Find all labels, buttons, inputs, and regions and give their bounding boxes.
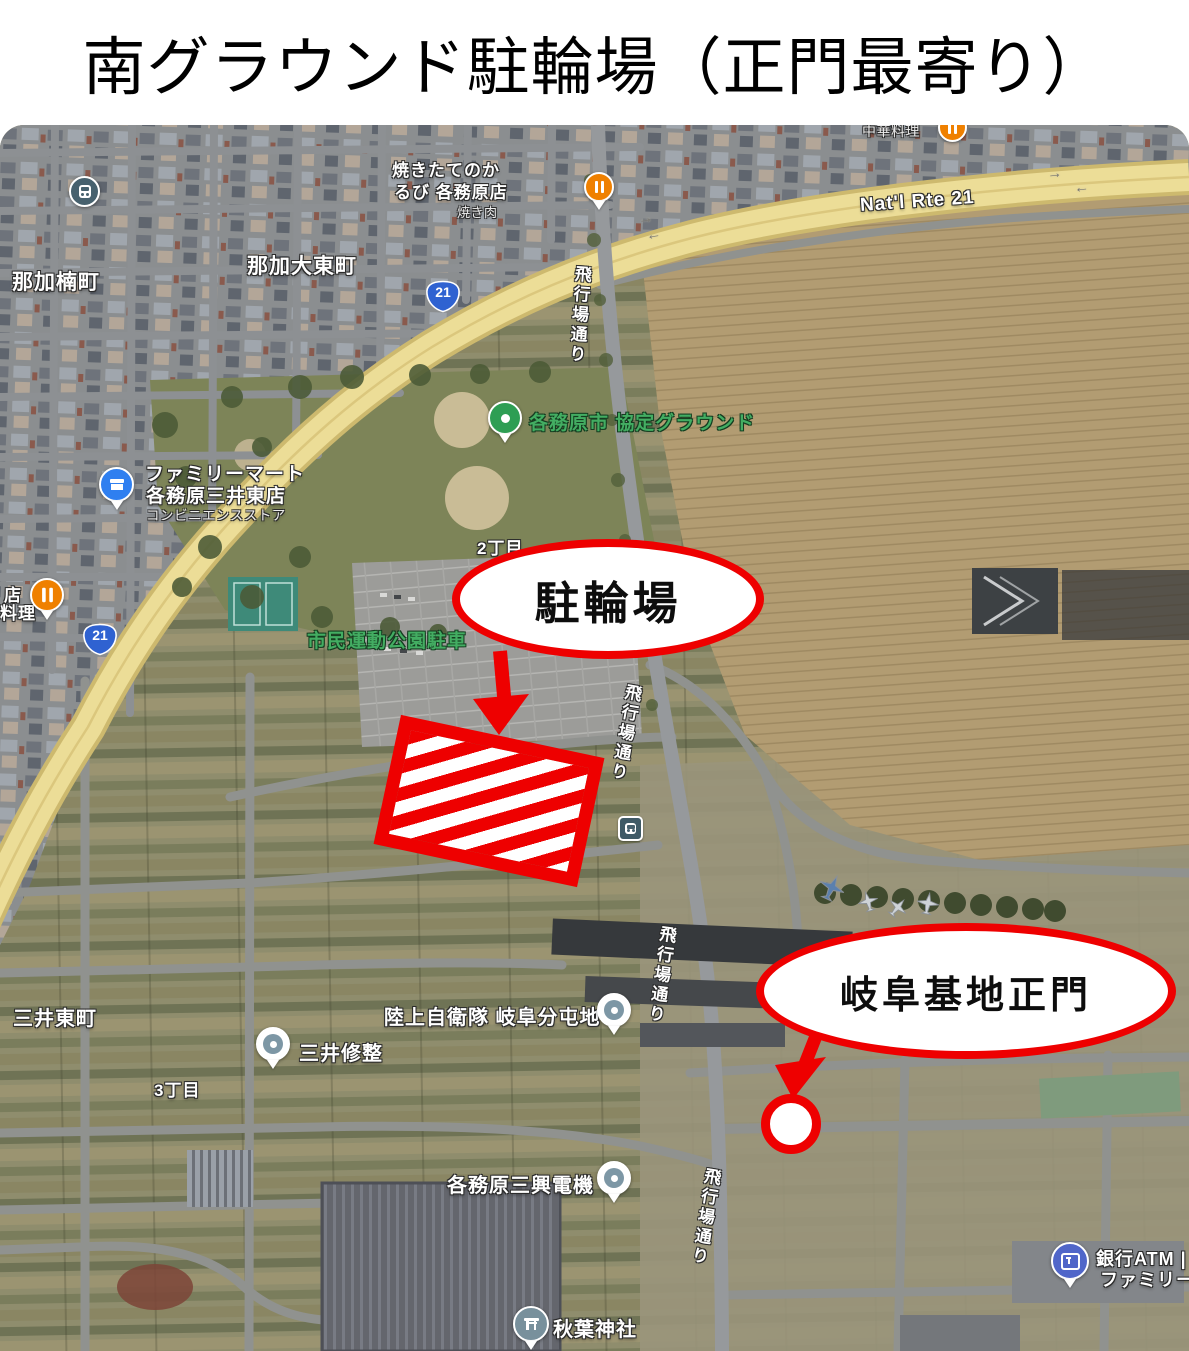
map-label-chuka-ryori: 中華料理 bbox=[862, 125, 920, 141]
map-label-familymart-3: コンビニエンスストア bbox=[146, 504, 286, 524]
map-label-family-partial: ファミリー bbox=[1100, 1266, 1189, 1292]
route-21-shield: 21 bbox=[81, 623, 119, 656]
satellite-base bbox=[0, 125, 1189, 1351]
map-label-akiba-jinja: 秋葉神社 bbox=[553, 1313, 637, 1342]
bike-parking-callout: 駐輪場 bbox=[452, 539, 764, 659]
map-label-san-chome: 3丁目 bbox=[154, 1076, 200, 1101]
gate-location-marker bbox=[761, 1094, 821, 1154]
map-image: Nat'l Rte 21 → ← → ← 飛行場通り 飛行場通り 飛行場通り 飛… bbox=[0, 125, 1189, 1351]
poi-pin-icon bbox=[597, 993, 631, 1027]
gate-callout-label: 岐阜基地正門 bbox=[840, 964, 1092, 1019]
route-21-shield: 21 bbox=[424, 280, 462, 313]
atm-pin-icon bbox=[1051, 1242, 1089, 1280]
map-label-mitsui-shusei: 三井修整 bbox=[299, 1037, 383, 1066]
traffic-arrow-icon: ← bbox=[645, 225, 663, 244]
traffic-arrow-icon: ← bbox=[1073, 178, 1090, 196]
map-label-shimin-parking: 市民運動公園駐車 bbox=[307, 626, 467, 653]
shrine-pin-icon bbox=[513, 1306, 549, 1342]
map-label-yakitate-2: るび 各務原店 bbox=[394, 178, 508, 203]
restaurant-pin-icon bbox=[938, 125, 967, 142]
title-bar: 南グラウンド駐輪場（正門最寄り） bbox=[0, 0, 1189, 125]
train-station-icon bbox=[69, 176, 100, 207]
bike-parking-callout-label: 駐輪場 bbox=[534, 567, 681, 632]
poi-pin-icon bbox=[597, 1161, 631, 1195]
map-label-mitsui-higashi: 三井東町 bbox=[13, 1002, 97, 1031]
map-label-naka-daito: 那加大東町 bbox=[247, 250, 357, 280]
map-label-sanko-denki: 各務原三興電機 bbox=[447, 1169, 594, 1198]
park-pin-icon bbox=[488, 401, 522, 435]
map-label-kyotei-ground: 各務原市 協定グラウンド bbox=[529, 408, 755, 435]
restaurant-pin-icon bbox=[30, 578, 64, 612]
gate-callout: 岐阜基地正門 bbox=[756, 923, 1176, 1059]
traffic-arrow-icon: → bbox=[1046, 164, 1063, 182]
page-title: 南グラウンド駐輪場（正門最寄り） bbox=[83, 17, 1107, 108]
map-label-yakiniku: 焼き肉 bbox=[457, 202, 498, 221]
restaurant-pin-icon bbox=[584, 172, 614, 202]
poi-pin-icon bbox=[256, 1027, 290, 1061]
map-label-rikujo-jieitai: 陸上自衛隊 岐阜分屯地 bbox=[384, 1001, 601, 1030]
bus-stop-icon bbox=[618, 816, 643, 841]
map-label-naka-kusunoki: 那加楠町 bbox=[12, 266, 100, 296]
convenience-store-pin-icon bbox=[99, 467, 134, 502]
